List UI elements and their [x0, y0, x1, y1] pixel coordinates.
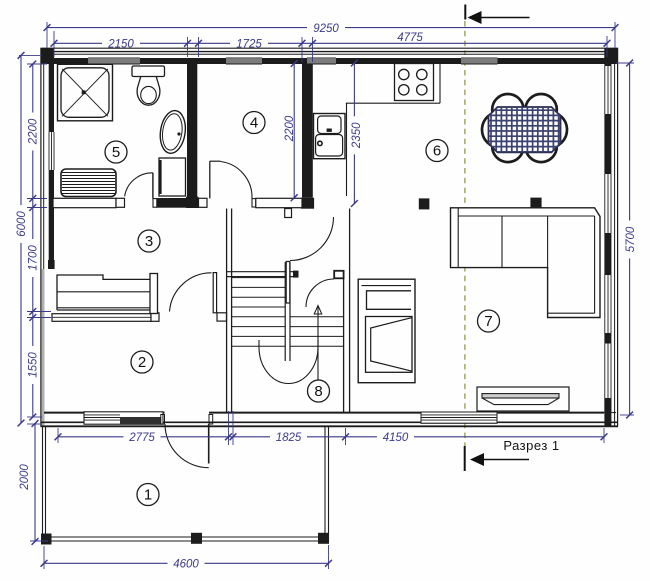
- svg-text:7: 7: [484, 313, 492, 330]
- svg-text:5700: 5700: [625, 226, 637, 252]
- svg-text:2: 2: [138, 354, 146, 371]
- svg-text:2200: 2200: [284, 115, 296, 142]
- svg-text:1: 1: [144, 487, 152, 504]
- svg-text:1725: 1725: [236, 39, 262, 51]
- svg-text:3: 3: [145, 233, 153, 250]
- svg-text:2200: 2200: [27, 118, 39, 145]
- svg-text:2150: 2150: [107, 39, 134, 51]
- svg-text:1825: 1825: [276, 432, 302, 444]
- svg-text:4: 4: [250, 115, 258, 132]
- svg-text:1550: 1550: [27, 352, 39, 378]
- svg-text:Разрез 1: Разрез 1: [503, 438, 559, 453]
- svg-text:2775: 2775: [128, 432, 155, 444]
- svg-text:2350: 2350: [351, 122, 363, 149]
- svg-text:4775: 4775: [397, 32, 423, 44]
- svg-text:5: 5: [112, 144, 120, 161]
- svg-text:1700: 1700: [27, 245, 39, 271]
- svg-text:4600: 4600: [173, 559, 199, 571]
- svg-text:9250: 9250: [313, 23, 339, 35]
- svg-text:8: 8: [314, 383, 322, 400]
- svg-text:4150: 4150: [383, 432, 409, 444]
- svg-text:6: 6: [433, 143, 441, 160]
- svg-text:2000: 2000: [19, 464, 31, 491]
- svg-text:6000: 6000: [16, 211, 28, 237]
